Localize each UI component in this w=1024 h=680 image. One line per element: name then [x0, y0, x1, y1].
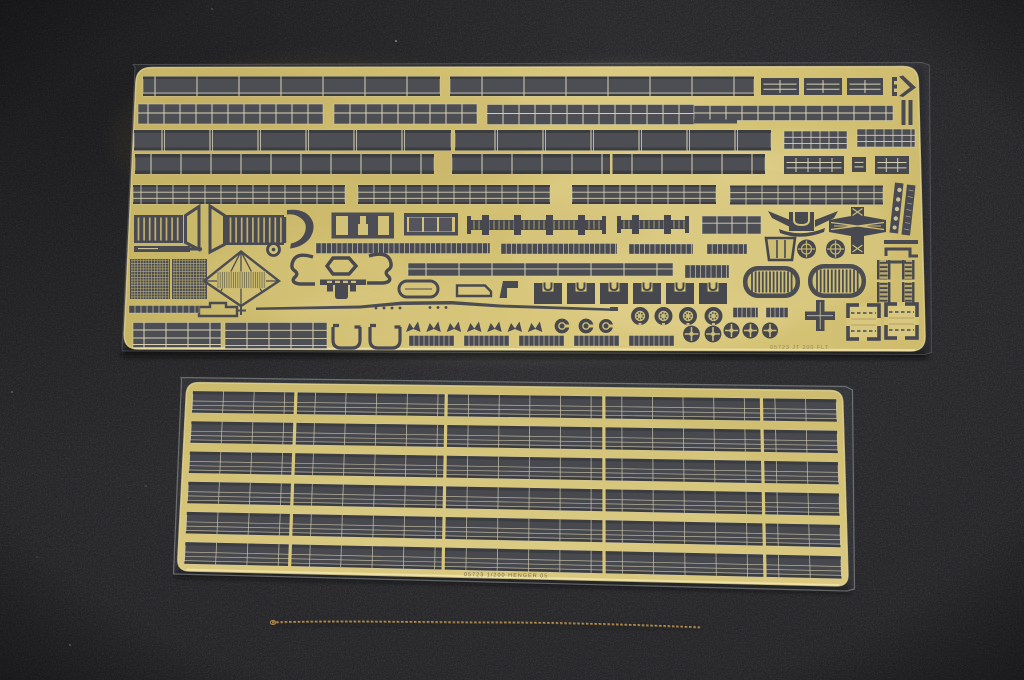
svg-text:05723 JT 200 FLT: 05723 JT 200 FLT: [770, 345, 829, 351]
